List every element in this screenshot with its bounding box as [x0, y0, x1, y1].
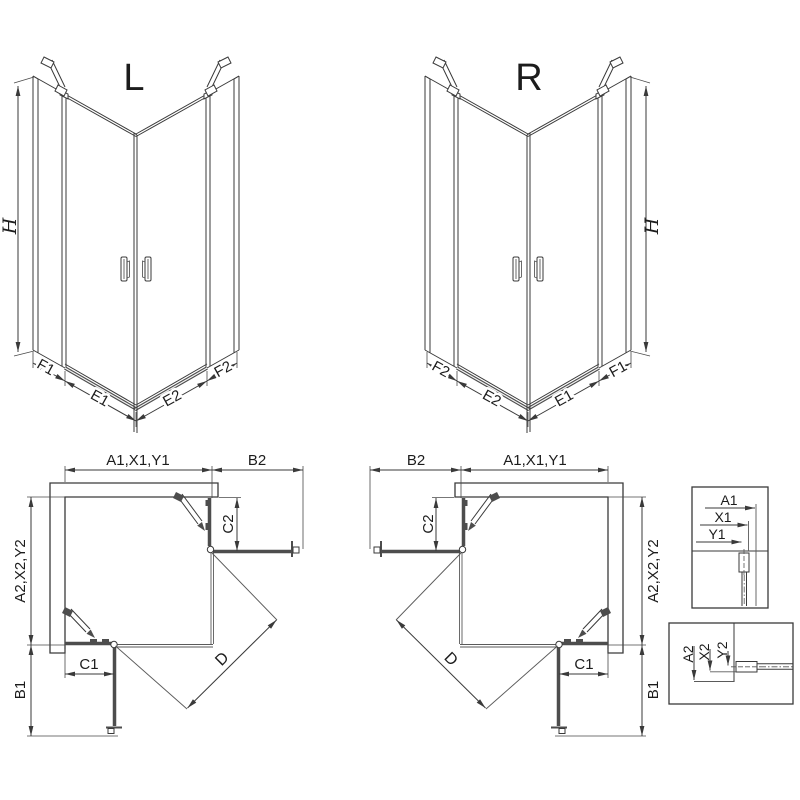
shower-enclosure-drawing: L H F1 E1 E2 F2 R H F2 E2 E1 F1 A1,X1,Y1… — [0, 0, 800, 800]
plan-left-depth-label: A2,X2,Y2 — [12, 539, 29, 602]
plan-right-panel-top-label: C2 — [420, 514, 437, 533]
plan-left-panel-top-label: C2 — [220, 514, 237, 533]
plan-view-left: A1,X1,Y1 B2 C2 A2,X2,Y2 C1 B1 D — [12, 452, 303, 736]
iso-left-f2-label: F2 — [211, 358, 235, 381]
iso-view-right: R H F2 E2 E1 F1 — [425, 57, 663, 433]
detail-bottom-a2-label: A2 — [680, 645, 696, 662]
iso-right-f2-label: F2 — [429, 358, 453, 381]
detail-box-bottom: A2 X2 Y2 — [669, 623, 793, 704]
detail-top-reference-lines — [749, 504, 757, 606]
iso-left-f1-label: F1 — [34, 356, 58, 379]
iso-right-variant-label: R — [515, 57, 542, 99]
plan-view-right: B2 A1,X1,Y1 C2 A2,X2,Y2 C1 B1 D — [370, 452, 662, 736]
plan-right-width-top-label: A1,X1,Y1 — [503, 452, 566, 469]
iso-right-height-label: H — [641, 217, 663, 235]
detail-top-y1-label: Y1 — [708, 526, 725, 542]
plan-right-ext-top-label: B2 — [407, 452, 425, 469]
plan-left-width-top-label: A1,X1,Y1 — [106, 452, 169, 469]
plan-left-ext-top-label: B2 — [248, 452, 266, 469]
plan-right-linework — [370, 466, 646, 736]
plan-right-ext-bottom-label: B1 — [645, 681, 662, 699]
plan-left-ext-bottom-label: B1 — [12, 681, 29, 699]
detail-bottom-x2-label: X2 — [696, 643, 712, 660]
plan-right-depth-label: A2,X2,Y2 — [645, 539, 662, 602]
plan-right-panel-bottom-label: C1 — [574, 656, 593, 673]
plan-left-linework — [27, 466, 303, 736]
iso-left-e2-label: E2 — [160, 387, 184, 411]
iso-right-e2-label: E2 — [480, 387, 504, 411]
iso-view-left: L H F1 E1 E2 F2 — [0, 57, 239, 433]
detail-top-a1-label: A1 — [720, 492, 737, 508]
iso-right-e1-label: E1 — [552, 387, 576, 411]
technical-drawing-page: L H F1 E1 E2 F2 R H F2 E2 E1 F1 A1,X1,Y1… — [0, 0, 800, 800]
plan-left-panel-bottom-label: C1 — [79, 656, 98, 673]
detail-top-x1-label: X1 — [714, 509, 731, 525]
detail-bottom-y2-label: Y2 — [714, 641, 730, 658]
iso-left-height-label: H — [0, 217, 21, 235]
detail-bottom-reference-lines — [694, 672, 736, 682]
iso-left-variant-label: L — [123, 57, 144, 99]
detail-box-top: A1 X1 Y1 — [692, 487, 768, 608]
detail-top-wall-profile — [739, 553, 749, 572]
iso-left-e1-label: E1 — [88, 387, 112, 411]
